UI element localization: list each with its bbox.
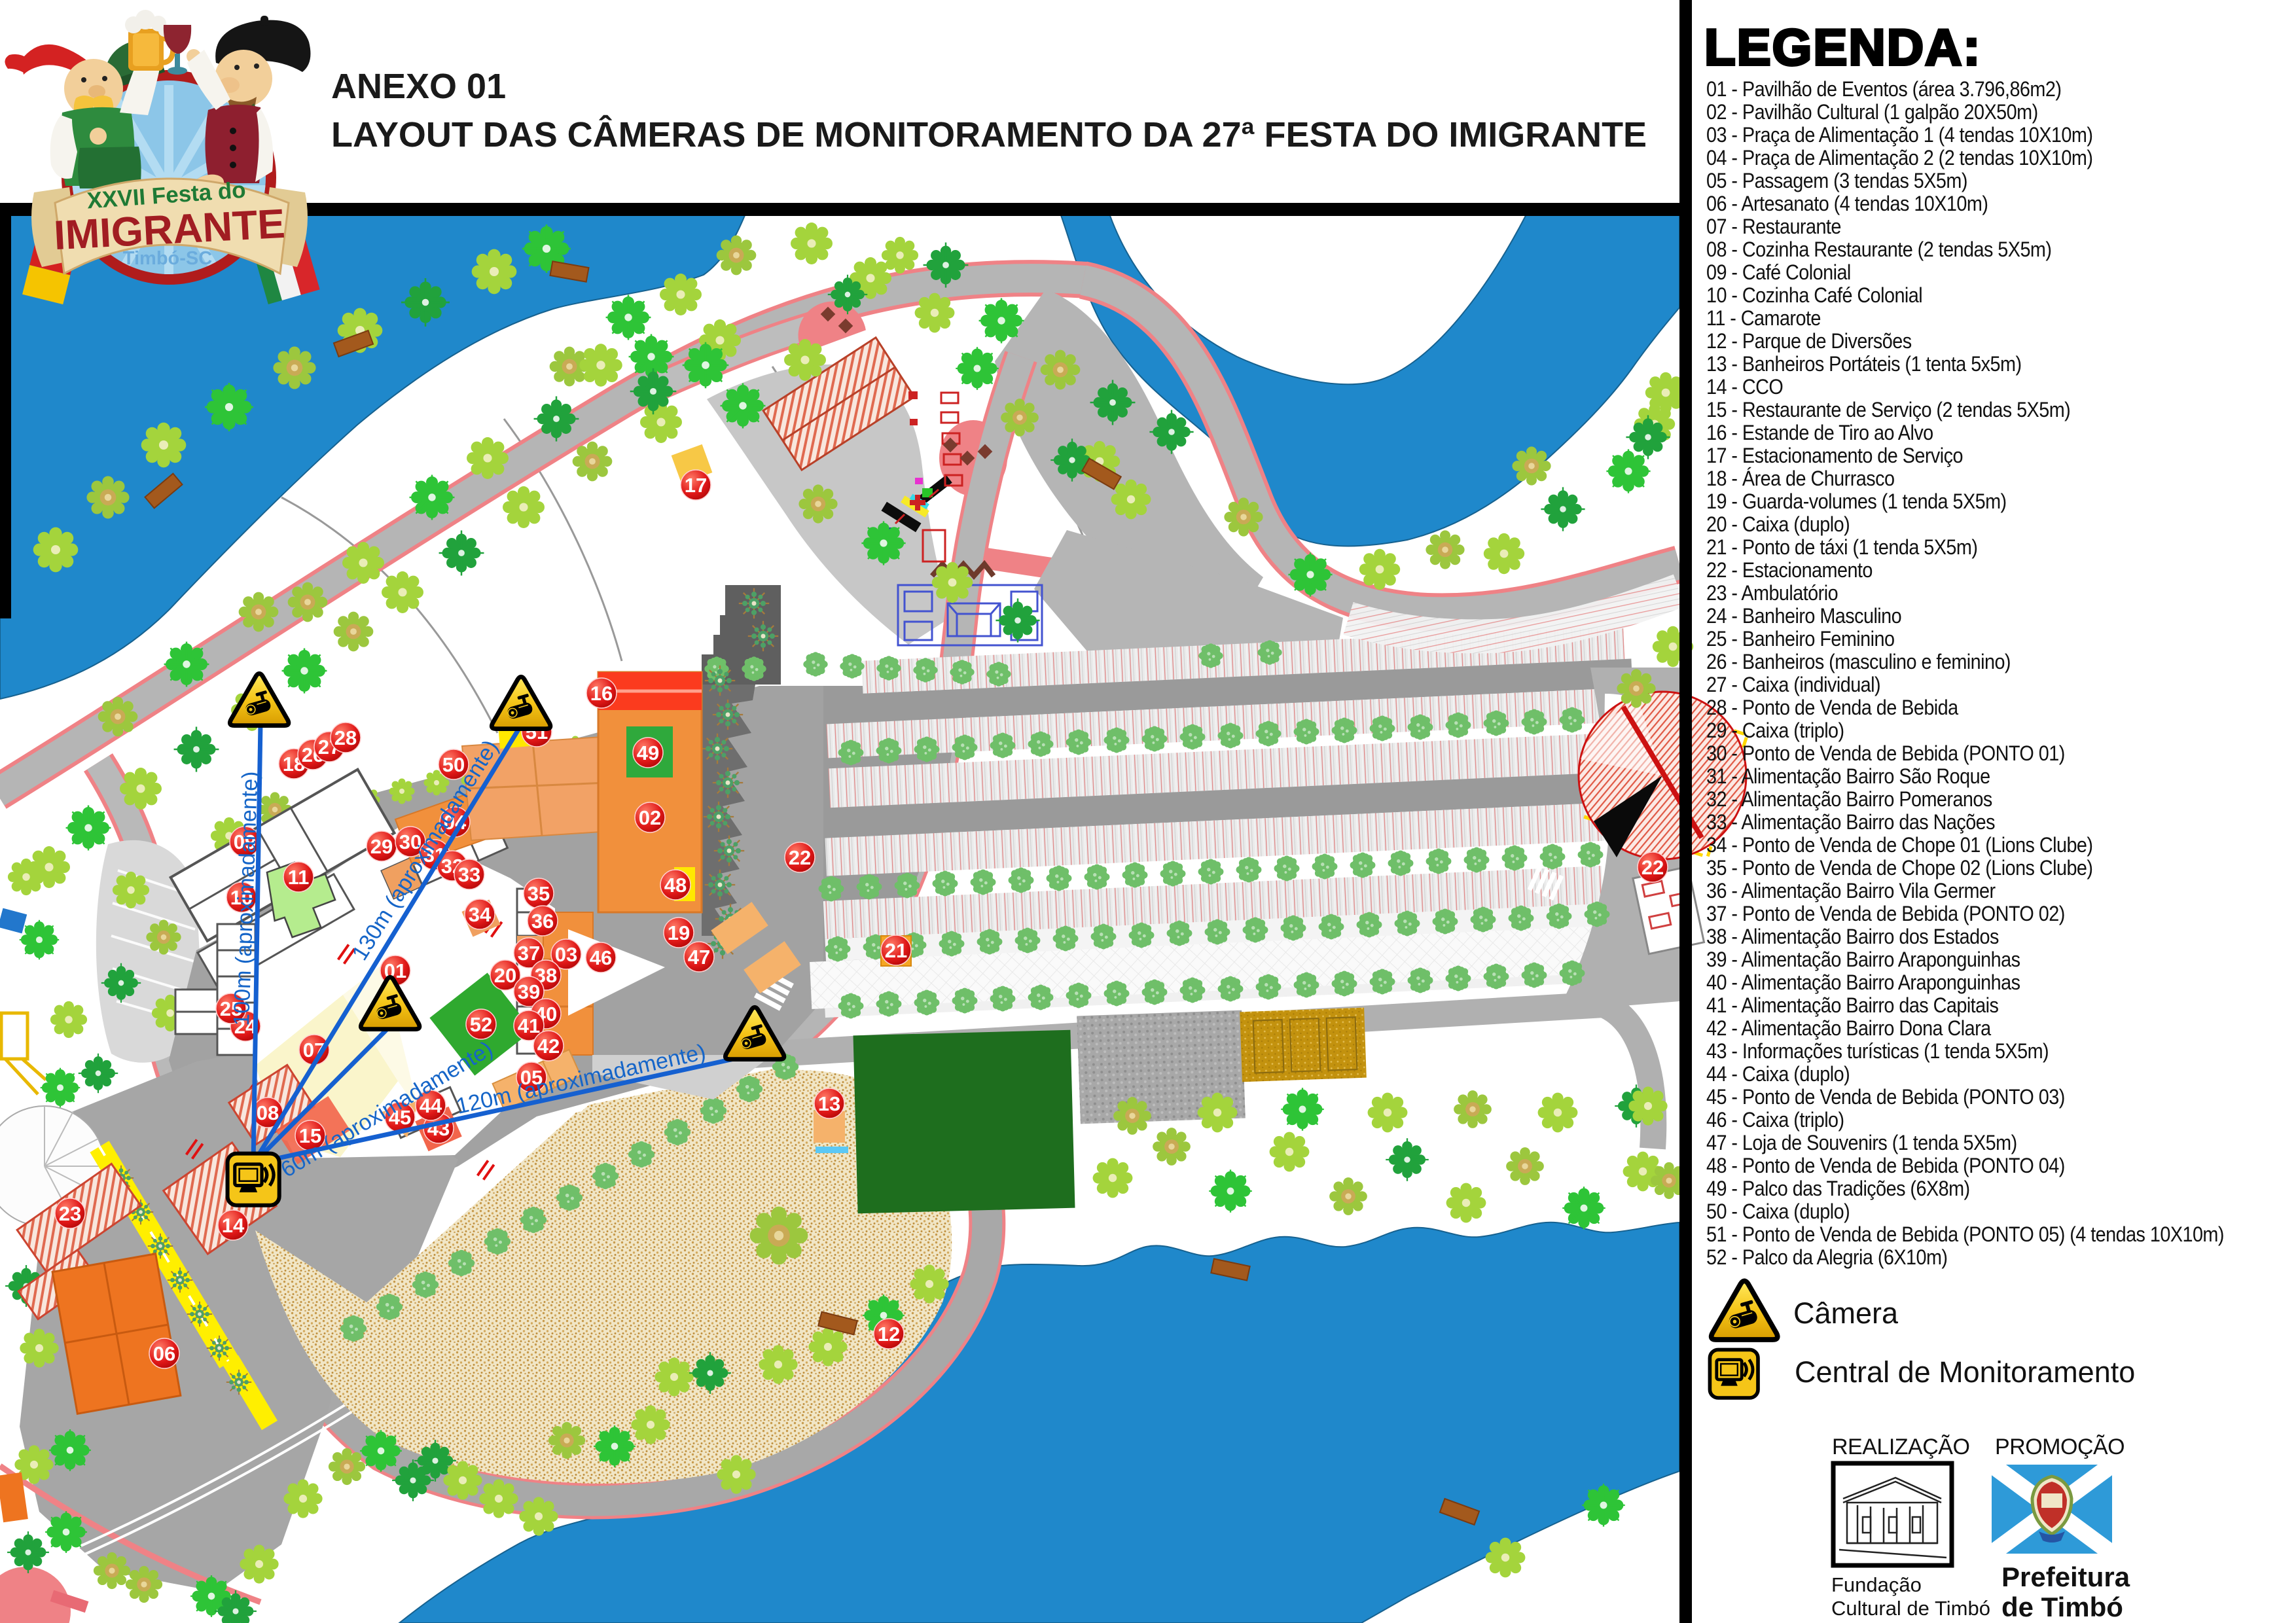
svg-text:16 - Estande de Tiro ao Alvo: 16 - Estande de Tiro ao Alvo — [1706, 421, 1933, 445]
svg-text:01 - Pavilhão de Eventos (área: 01 - Pavilhão de Eventos (área 3.796,86m… — [1706, 78, 2061, 101]
svg-text:06 - Artesanato (4 tendas 10X1: 06 - Artesanato (4 tendas 10X10m) — [1706, 192, 1988, 216]
svg-text:Timbó-SC: Timbó-SC — [123, 248, 212, 269]
svg-text:22: 22 — [1641, 856, 1664, 879]
svg-text:29 - Caixa (triplo): 29 - Caixa (triplo) — [1706, 719, 1844, 743]
svg-text:PROMOÇÃO: PROMOÇÃO — [1995, 1435, 2125, 1459]
svg-text:LEGENDA:: LEGENDA: — [1704, 18, 1981, 76]
svg-text:14 - CCO: 14 - CCO — [1706, 376, 1783, 399]
svg-text:13: 13 — [818, 1092, 840, 1115]
svg-text:43 - Informações turísticas (1: 43 - Informações turísticas (1 tenda 5X5… — [1706, 1040, 2049, 1063]
svg-text:23 - Ambulatório: 23 - Ambulatório — [1706, 582, 1838, 605]
svg-text:06: 06 — [153, 1342, 175, 1365]
svg-text:22: 22 — [789, 846, 811, 869]
svg-text:04 - Praça de Alimentação 2 (2: 04 - Praça de Alimentação 2 (2 tendas 10… — [1706, 147, 2092, 170]
svg-text:Central de Monitoramento: Central de Monitoramento — [1795, 1355, 2135, 1389]
svg-text:Fundação: Fundação — [1831, 1573, 1922, 1596]
svg-text:33: 33 — [458, 863, 480, 886]
svg-text:35 - Ponto de Venda de Chope 0: 35 - Ponto de Venda de Chope 02 (Lions C… — [1706, 857, 2092, 880]
svg-text:31 - Alimentação Bairro São Ro: 31 - Alimentação Bairro São Roque — [1706, 765, 1990, 789]
svg-text:34 - Ponto de Venda de Chope 0: 34 - Ponto de Venda de Chope 01 (Lions C… — [1706, 834, 2092, 857]
svg-text:10 - Cozinha Café Colonial: 10 - Cozinha Café Colonial — [1706, 284, 1922, 308]
svg-text:05 - Passagem (3 tendas 5X5m): 05 - Passagem (3 tendas 5X5m) — [1706, 169, 1967, 193]
svg-text:12: 12 — [878, 1323, 900, 1346]
svg-text:35: 35 — [528, 882, 550, 905]
svg-text:Prefeitura: Prefeitura — [2001, 1561, 2130, 1592]
svg-text:45 - Ponto de Venda de Bebida: 45 - Ponto de Venda de Bebida (PONTO 03) — [1706, 1086, 2065, 1109]
svg-text:23: 23 — [59, 1202, 81, 1225]
svg-text:46 - Caixa (triplo): 46 - Caixa (triplo) — [1706, 1109, 1844, 1132]
svg-text:02: 02 — [639, 806, 661, 829]
svg-text:49 - Palco das Tradições (6X8m: 49 - Palco das Tradições (6X8m) — [1706, 1177, 1970, 1201]
svg-text:48: 48 — [664, 874, 687, 897]
svg-text:02 - Pavilhão Cultural (1 galp: 02 - Pavilhão Cultural (1 galpão 20X50m) — [1706, 101, 2038, 124]
svg-text:16: 16 — [590, 682, 613, 705]
svg-text:36 - Alimentação Bairro Vila G: 36 - Alimentação Bairro Vila Germer — [1706, 880, 1996, 903]
svg-text:Cultural de Timbó: Cultural de Timbó — [1831, 1597, 1990, 1620]
svg-text:21: 21 — [885, 939, 907, 962]
svg-text:ANEXO 01: ANEXO 01 — [331, 67, 506, 106]
svg-text:19 - Guarda-volumes (1 tenda 5: 19 - Guarda-volumes (1 tenda 5X5m) — [1706, 490, 2007, 514]
svg-text:26 - Banheiros (masculino e fe: 26 - Banheiros (masculino e feminino) — [1706, 651, 2011, 674]
svg-text:30 - Ponto de Venda de Bebida: 30 - Ponto de Venda de Bebida (PONTO 01) — [1706, 742, 2065, 766]
svg-text:21 - Ponto de táxi (1 tenda 5X: 21 - Ponto de táxi (1 tenda 5X5m) — [1706, 536, 1977, 560]
svg-text:40 - Alimentação Bairro Arapon: 40 - Alimentação Bairro Araponguinhas — [1706, 971, 2020, 995]
svg-text:37 - Ponto de Venda de Bebida: 37 - Ponto de Venda de Bebida (PONTO 02) — [1706, 902, 2065, 926]
svg-text:13 - Banheiros Portáteis (1 te: 13 - Banheiros Portáteis (1 tenta 5x5m) — [1706, 353, 2022, 376]
svg-text:20: 20 — [494, 964, 516, 987]
svg-text:42: 42 — [537, 1035, 560, 1058]
svg-text:28 - Ponto de Venda de Bebida: 28 - Ponto de Venda de Bebida — [1706, 696, 1958, 720]
svg-text:33 - Alimentação Bairro das Na: 33 - Alimentação Bairro das Nações — [1706, 811, 1995, 834]
svg-text:37: 37 — [518, 942, 540, 965]
svg-text:52: 52 — [470, 1013, 492, 1036]
svg-text:41: 41 — [518, 1014, 540, 1037]
svg-text:03: 03 — [555, 943, 577, 966]
svg-text:47 - Loja de Souvenirs (1 tend: 47 - Loja de Souvenirs (1 tenda 5X5m) — [1706, 1132, 2017, 1155]
svg-text:11 - Camarote: 11 - Camarote — [1706, 307, 1821, 330]
svg-text:19: 19 — [668, 921, 690, 944]
svg-text:18 - Área de Churrasco: 18 - Área de Churrasco — [1706, 467, 1894, 491]
svg-text:29: 29 — [370, 835, 393, 858]
svg-text:09 - Café Colonial: 09 - Café Colonial — [1706, 261, 1851, 285]
svg-text:07 - Restaurante: 07 - Restaurante — [1706, 215, 1841, 239]
svg-text:49: 49 — [637, 741, 659, 764]
svg-text:03 - Praça de Alimentação 1 (4: 03 - Praça de Alimentação 1 (4 tendas 10… — [1706, 124, 2092, 147]
svg-text:47: 47 — [688, 946, 710, 969]
svg-text:08 - Cozinha Restaurante (2 te: 08 - Cozinha Restaurante (2 tendas 5X5m) — [1706, 238, 2051, 262]
svg-text:44 - Caixa (duplo): 44 - Caixa (duplo) — [1706, 1063, 1850, 1086]
svg-text:39: 39 — [518, 980, 540, 1003]
svg-text:17: 17 — [685, 474, 707, 497]
svg-text:25 - Banheiro Feminino: 25 - Banheiro Feminino — [1706, 628, 1894, 651]
svg-text:08: 08 — [257, 1101, 279, 1124]
svg-text:50 - Caixa (duplo): 50 - Caixa (duplo) — [1706, 1200, 1850, 1224]
svg-text:24 - Banheiro Masculino: 24 - Banheiro Masculino — [1706, 605, 1901, 628]
svg-text:27 - Caixa (individual): 27 - Caixa (individual) — [1706, 673, 1880, 697]
svg-text:52 - Palco da Alegria (6X10m): 52 - Palco da Alegria (6X10m) — [1706, 1246, 1947, 1270]
svg-text:36: 36 — [531, 910, 554, 933]
svg-text:51 - Ponto de Venda de Bebida: 51 - Ponto de Venda de Bebida (PONTO 05)… — [1706, 1223, 2224, 1247]
svg-text:46: 46 — [590, 946, 612, 969]
svg-text:34: 34 — [469, 903, 492, 926]
svg-text:20 - Caixa (duplo): 20 - Caixa (duplo) — [1706, 513, 1850, 537]
svg-text:12 - Parque de Diversões: 12 - Parque de Diversões — [1706, 330, 1912, 353]
svg-text:de Timbó: de Timbó — [2001, 1592, 2123, 1622]
svg-text:32 - Alimentação Bairro Pomera: 32 - Alimentação Bairro Pomeranos — [1706, 788, 1992, 811]
svg-text:Câmera: Câmera — [1793, 1296, 1899, 1330]
svg-text:17 - Estacionamento de Serviço: 17 - Estacionamento de Serviço — [1706, 444, 1963, 468]
svg-text:28: 28 — [334, 726, 357, 749]
svg-text:42 - Alimentação Bairro Dona C: 42 - Alimentação Bairro Dona Clara — [1706, 1017, 1991, 1041]
svg-text:22 - Estacionamento: 22 - Estacionamento — [1706, 559, 1873, 582]
svg-text:REALIZAÇÃO: REALIZAÇÃO — [1832, 1435, 1969, 1459]
svg-text:11: 11 — [288, 866, 310, 889]
svg-text:41 - Alimentação Bairro das Ca: 41 - Alimentação Bairro das Capitais — [1706, 994, 1999, 1018]
svg-text:LAYOUT DAS CÂMERAS DE MONITORA: LAYOUT DAS CÂMERAS DE MONITORAMENTO DA 2… — [331, 115, 1647, 154]
svg-text:38 - Alimentação Bairro dos Es: 38 - Alimentação Bairro dos Estados — [1706, 925, 1999, 949]
svg-text:39 - Alimentação Bairro Arapon: 39 - Alimentação Bairro Araponguinhas — [1706, 948, 2020, 972]
svg-text:48 - Ponto de Venda de Bebida: 48 - Ponto de Venda de Bebida (PONTO 04) — [1706, 1154, 2065, 1178]
svg-text:15 - Restaurante de Serviço (2: 15 - Restaurante de Serviço (2 tendas 5X… — [1706, 399, 2070, 422]
svg-text:14: 14 — [222, 1214, 245, 1237]
